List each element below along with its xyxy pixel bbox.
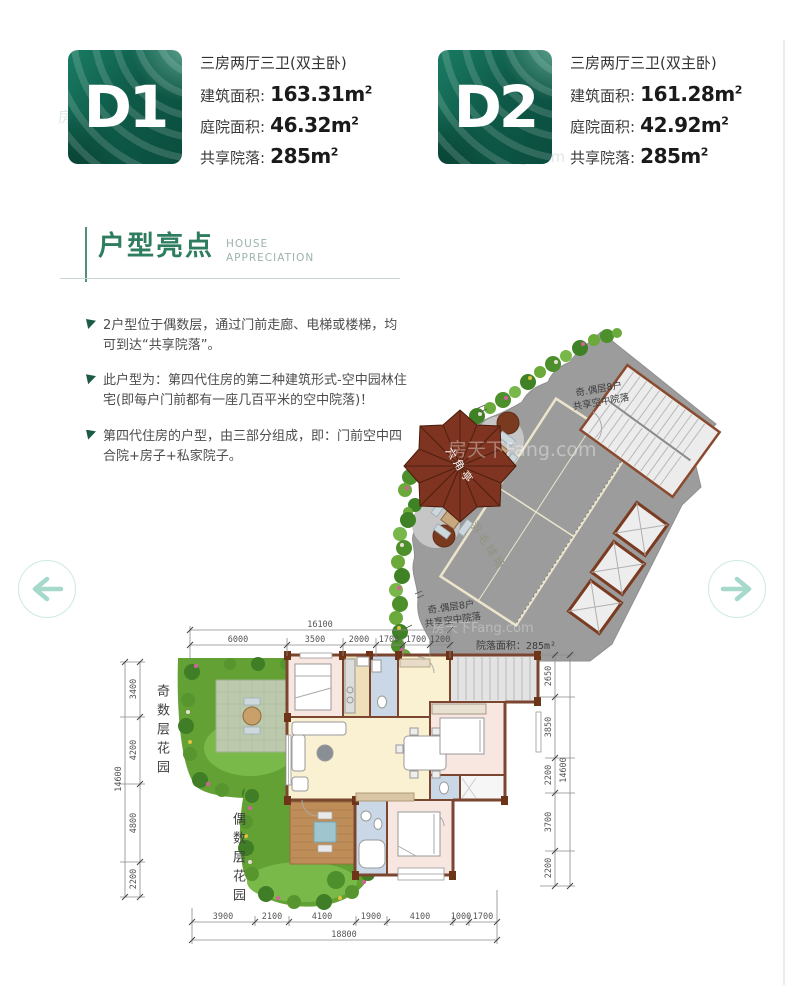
unit-badge-d1: D1 bbox=[68, 50, 182, 164]
svg-text:4100: 4100 bbox=[312, 912, 332, 922]
page-edge-divider bbox=[783, 40, 785, 985]
svg-text:2200: 2200 bbox=[544, 858, 554, 878]
spec-row: 共享院落: 285m2 bbox=[200, 144, 372, 168]
unit-card-d2[interactable]: D2 三房两厅三卫(双主卧) 建筑面积: 161.28m2 庭院面积: 42.9… bbox=[438, 50, 742, 168]
svg-text:1000: 1000 bbox=[451, 912, 471, 922]
unit-specs-d2: 三房两厅三卫(双主卧) 建筑面积: 161.28m2 庭院面积: 42.92m2… bbox=[570, 50, 742, 168]
svg-text:2650: 2650 bbox=[544, 666, 554, 686]
svg-text:2100: 2100 bbox=[262, 912, 282, 922]
odd-floor-garden-label: 奇数层花园 bbox=[152, 684, 171, 779]
courtyard-area-label: 院落面积：285m² bbox=[476, 639, 556, 652]
unit-specs-d1: 三房两厅三卫(双主卧) 建筑面积: 163.31m2 庭院面积: 46.32m2… bbox=[200, 50, 372, 168]
svg-text:2000: 2000 bbox=[349, 635, 369, 645]
section-underline bbox=[60, 278, 400, 279]
dimension-right-labels: 14600 2650 3850 2200 3700 2200 bbox=[544, 666, 569, 878]
carousel-prev-button[interactable] bbox=[18, 560, 76, 618]
layout-type: 三房两厅三卫(双主卧) bbox=[570, 52, 742, 73]
svg-text:4800: 4800 bbox=[129, 813, 139, 833]
arrow-left-icon bbox=[29, 575, 65, 603]
highlight-item: 第四代住房的户型，由三部分组成，即：门前空中四合院+房子+私家院子。 bbox=[86, 427, 408, 467]
layout-type: 三房两厅三卫(双主卧) bbox=[200, 52, 372, 73]
unit-card-d1[interactable]: D1 三房两厅三卫(双主卧) 建筑面积: 163.31m2 庭院面积: 46.3… bbox=[68, 50, 372, 168]
spec-row: 建筑面积: 161.28m2 bbox=[570, 82, 742, 106]
spec-row: 庭院面积: 42.92m2 bbox=[570, 113, 742, 137]
watermark-text: 房天下Fang.com bbox=[432, 620, 534, 636]
section-head: 户型亮点 HOUSE APPRECIATION bbox=[98, 232, 314, 265]
flag-bullet-icon bbox=[86, 430, 96, 440]
svg-text:18800: 18800 bbox=[331, 930, 357, 940]
highlight-item: 此户型为：第四代住房的第二种建筑形式-空中园林住宅(即每户门前都有一座几百平米的… bbox=[86, 371, 408, 411]
section-accent-line bbox=[85, 227, 87, 282]
dimension-top-labels: 16100 6000 3500 2000 1700 1700 1200 bbox=[228, 620, 450, 645]
highlights-list: 2户型位于偶数层，通过门前走廊、电梯或楼梯，均可到达“共享院落”。 此户型为：第… bbox=[86, 316, 408, 482]
section-subtitle: HOUSE APPRECIATION bbox=[226, 232, 314, 265]
svg-text:1900: 1900 bbox=[361, 912, 381, 922]
section-title: 户型亮点 bbox=[98, 232, 214, 262]
svg-text:4200: 4200 bbox=[129, 740, 139, 760]
svg-text:1700: 1700 bbox=[473, 912, 493, 922]
spec-row: 建筑面积: 163.31m2 bbox=[200, 82, 372, 106]
svg-text:2200: 2200 bbox=[129, 869, 139, 889]
svg-text:1700: 1700 bbox=[406, 635, 426, 645]
carousel-next-button[interactable] bbox=[708, 560, 766, 618]
svg-text:3850: 3850 bbox=[544, 717, 554, 737]
svg-text:3500: 3500 bbox=[305, 635, 325, 645]
svg-text:1200: 1200 bbox=[430, 635, 450, 645]
svg-text:16100: 16100 bbox=[307, 620, 333, 630]
floorplan-page: 羽毛球场 bbox=[0, 0, 788, 1004]
highlight-item: 2户型位于偶数层，通过门前走廊、电梯或楼梯，均可到达“共享院落”。 bbox=[86, 316, 408, 356]
watermark-text: 房天下Fang.com bbox=[448, 439, 597, 461]
unit-badge-d2: D2 bbox=[438, 50, 552, 164]
even-floor-garden-label: 偶数层花园 bbox=[228, 812, 247, 907]
spec-row: 庭院面积: 46.32m2 bbox=[200, 113, 372, 137]
flag-bullet-icon bbox=[86, 319, 96, 329]
spec-row: 共享院落: 285m2 bbox=[570, 144, 742, 168]
svg-text:3900: 3900 bbox=[213, 912, 233, 922]
svg-text:3700: 3700 bbox=[544, 812, 554, 832]
svg-text:2200: 2200 bbox=[544, 765, 554, 785]
svg-text:1700: 1700 bbox=[379, 635, 399, 645]
arrow-right-icon bbox=[719, 575, 755, 603]
svg-text:14600: 14600 bbox=[559, 757, 569, 783]
flag-bullet-icon bbox=[86, 374, 96, 384]
svg-text:3400: 3400 bbox=[129, 679, 139, 699]
svg-text:4100: 4100 bbox=[410, 912, 430, 922]
svg-text:6000: 6000 bbox=[228, 635, 248, 645]
svg-text:14600: 14600 bbox=[114, 766, 124, 792]
